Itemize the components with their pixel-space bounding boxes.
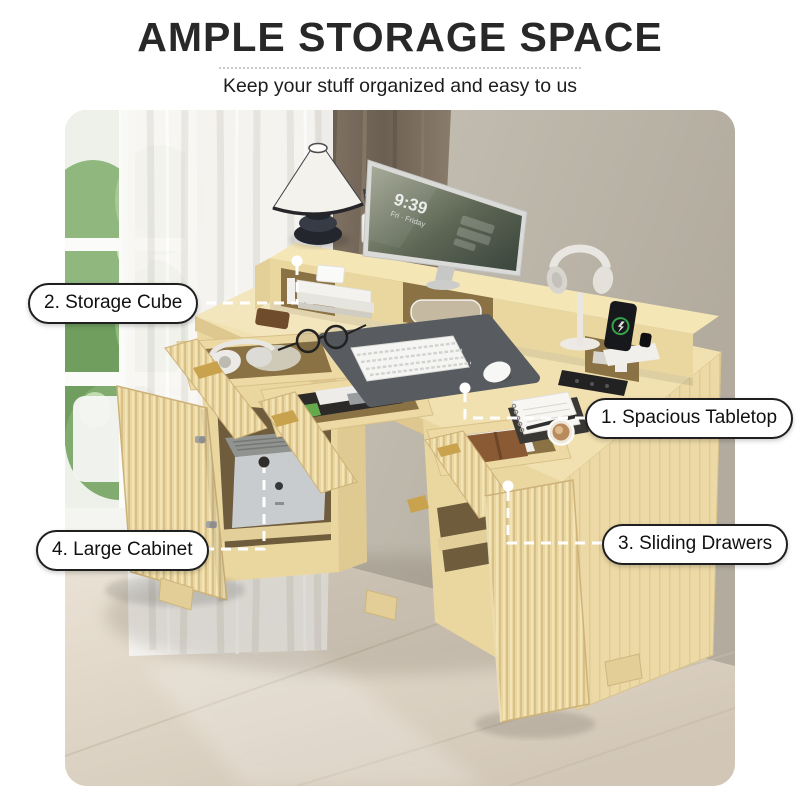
callout-sliding-drawers: 3. Sliding Drawers xyxy=(602,524,788,565)
page-subtitle: Keep your stuff organized and easy to us xyxy=(0,75,800,98)
product-infographic: AMPLE STORAGE SPACE Keep your stuff orga… xyxy=(0,0,800,800)
desk-photo: 9:39 Fri · Friday xyxy=(65,110,735,786)
right-cabinet-door xyxy=(485,480,589,722)
smartwatch xyxy=(639,332,652,348)
callout-large-cabinet: 4. Large Cabinet xyxy=(36,530,209,571)
callout-spacious-tabletop: 1. Spacious Tabletop xyxy=(585,398,793,439)
title-divider xyxy=(219,67,581,69)
coffee-cup xyxy=(549,420,574,445)
page-title: AMPLE STORAGE SPACE xyxy=(0,14,800,61)
callout-storage-cube: 2. Storage Cube xyxy=(28,283,198,324)
